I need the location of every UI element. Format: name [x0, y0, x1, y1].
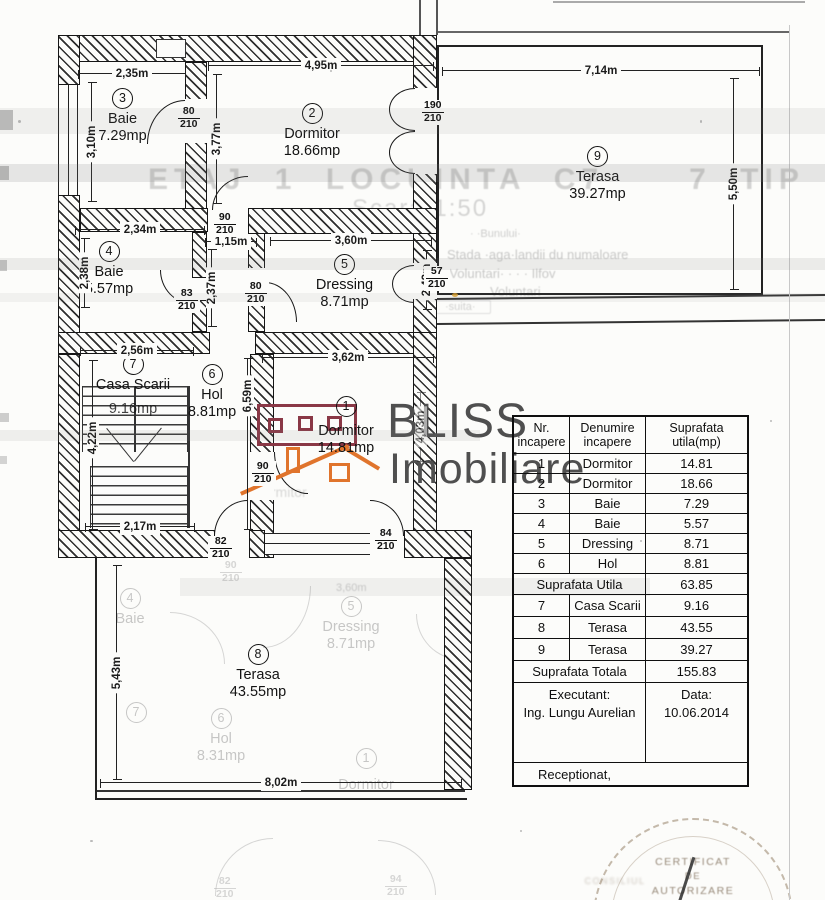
plan-line	[419, 0, 421, 35]
room-label-casa-scarii-7: 7 Casa Scarii 9.16mp	[84, 354, 182, 418]
plan-line	[437, 31, 790, 33]
room-label-terasa-9: 9 Terasa 39.27mp	[540, 146, 655, 203]
dim-3-60m: 3,60m	[270, 240, 432, 249]
door-size-82-210: 82210	[208, 536, 234, 561]
room-label-dormitor-1: 1 Dormitor 14.81mp	[300, 396, 392, 457]
dim-4-03m: 4,03m	[420, 392, 421, 462]
wall-segment	[58, 35, 80, 85]
scan-speck	[90, 840, 93, 842]
table-subtotal-row: Suprafata Utila63.85	[514, 574, 747, 595]
area-table: Nr. incapere Denumire incapere Suprafata…	[512, 415, 749, 787]
dim-2-17m: 2,17m	[85, 526, 195, 535]
executant-name: Ing. Lungu Aurelian	[523, 704, 635, 722]
door-size-80-210: 80210	[176, 106, 202, 131]
scan-speck	[700, 120, 702, 123]
room-number-badge: 2	[302, 103, 323, 124]
room-number-badge: 4	[99, 241, 120, 262]
wall-segment	[60, 35, 437, 62]
table-header-denumire: Denumire incapere	[570, 417, 646, 454]
scan-speck	[520, 830, 522, 832]
building-window-icon	[268, 418, 283, 433]
table-executant-row: Executant: Ing. Lungu Aurelian Data: 10.…	[514, 683, 747, 763]
receptionat-label: Receptionat,	[514, 763, 747, 785]
door-arc	[265, 282, 297, 322]
wall-segment	[404, 530, 472, 558]
room-label-dormitor-2: 2 Dormitor 18.66mp	[262, 103, 362, 160]
scan-edge-mark	[0, 456, 7, 464]
room-label-terasa-8: 8 Terasa 43.55mp	[208, 644, 308, 701]
roof-window-icon	[329, 463, 350, 482]
wall-segment	[58, 354, 80, 558]
scan-edge-mark	[0, 413, 9, 422]
stamp-side-text: CONSILIUL	[580, 876, 650, 886]
room-label-dressing-5: 5 Dressing 8.71mp	[302, 254, 387, 311]
page-fold-line	[789, 25, 790, 900]
ghost-box-text: ·suita·	[430, 300, 491, 314]
plan-line	[437, 319, 825, 325]
scan-speck	[770, 420, 772, 422]
dim-2-35m: 2,35m	[78, 73, 186, 82]
page-edge-line	[553, 1, 805, 3]
scan-speck	[18, 120, 21, 123]
table-total-row: Suprafata Totala155.83	[514, 661, 747, 683]
date-label: Data:	[681, 686, 712, 704]
wall-segment	[249, 530, 265, 558]
table-header-nr: Nr. incapere	[514, 417, 570, 454]
table-header-suprafata: Suprafata utila(mp)	[646, 417, 747, 454]
table-row: 9Terasa39.27	[514, 639, 747, 661]
scan-edge-mark	[0, 166, 9, 180]
ghost-door-arc	[215, 838, 273, 896]
room-number-badge: 9	[587, 146, 608, 167]
room-number-badge: 1	[336, 396, 357, 417]
table-row: 7Casa Scarii9.16	[514, 595, 747, 617]
scan-speck	[330, 70, 332, 72]
table-row: 8Terasa43.55	[514, 617, 747, 639]
stamp-text: AUTORIZARE	[641, 885, 745, 897]
color-speck	[452, 293, 458, 297]
door-size-57-210: 57210	[424, 266, 450, 291]
table-row: 6Hol8.81	[514, 554, 747, 574]
date-value: 10.06.2014	[664, 704, 729, 722]
plan-line	[436, 0, 438, 35]
door-arc	[392, 265, 414, 303]
wall-segment	[248, 208, 437, 234]
scan-edge-mark	[0, 260, 7, 271]
dim-2-56m: 2,56m	[80, 350, 194, 359]
door-size-84-210: 84210	[373, 528, 399, 553]
dim-2-37m: 2,37m	[211, 249, 212, 327]
dim-2-38m: 2,38m	[84, 238, 85, 308]
table-row: 4Baie5.57	[514, 514, 747, 534]
dim-5-43m: 5,43m	[116, 565, 117, 780]
double-door-arc	[389, 88, 415, 131]
door-size-80-210: 80210	[243, 281, 269, 306]
dim-8-02m: 8,02m	[100, 782, 462, 791]
dim-3-77m: 3,77m	[216, 74, 217, 204]
executant-label: Executant:	[549, 686, 610, 704]
table-row: 1Dormitor14.81	[514, 454, 747, 474]
dim-4-95m: 4,95m	[208, 65, 434, 74]
door-size-83-210: 83210	[174, 288, 200, 313]
room-number-badge: 8	[248, 644, 269, 665]
dim-5-50m: 5,50m	[733, 78, 734, 290]
ghost-door-arc	[378, 840, 436, 895]
table-row: 3Baie7.29	[514, 494, 747, 514]
room-number-badge: 5	[334, 254, 355, 275]
door-size-90-210: 90210	[212, 212, 238, 237]
window-symbol	[265, 533, 370, 555]
door-arc	[214, 500, 248, 536]
dim-2-34m: 2,34m	[75, 229, 205, 238]
chimney-icon	[286, 447, 300, 473]
room-label-hol-6: 6 Hol 8.81mp	[181, 364, 243, 421]
scanned-floorplan-document: ETAJ 1 LOCUINTA C7 7 TIP Scara 1:50 · ·B…	[0, 0, 825, 900]
dim-4-22m: 4,22m	[92, 360, 93, 530]
wall-notch	[156, 39, 186, 58]
dim-7-14m: 7,14m	[442, 70, 760, 79]
door-size-90-210: 90210	[250, 461, 276, 486]
table-row: 2Dormitor18.66	[514, 474, 747, 494]
dim-3-62m: 3,62m	[262, 357, 434, 366]
dim-6-59m: 6,59m	[247, 358, 248, 530]
stamp-text: DE	[645, 871, 741, 882]
logo-brand-text: BLISS	[387, 398, 528, 446]
scan-edge-mark	[0, 110, 13, 130]
room-number-badge: 6	[202, 364, 223, 385]
door-size-190-210: 190210	[420, 100, 446, 125]
room-number-badge: 3	[112, 88, 133, 109]
dim-3-10m: 3,10m	[91, 82, 92, 202]
table-receptionat-row: Receptionat,	[514, 763, 747, 785]
table-row: 5Dressing8.71	[514, 534, 747, 554]
window-symbol	[58, 85, 78, 195]
